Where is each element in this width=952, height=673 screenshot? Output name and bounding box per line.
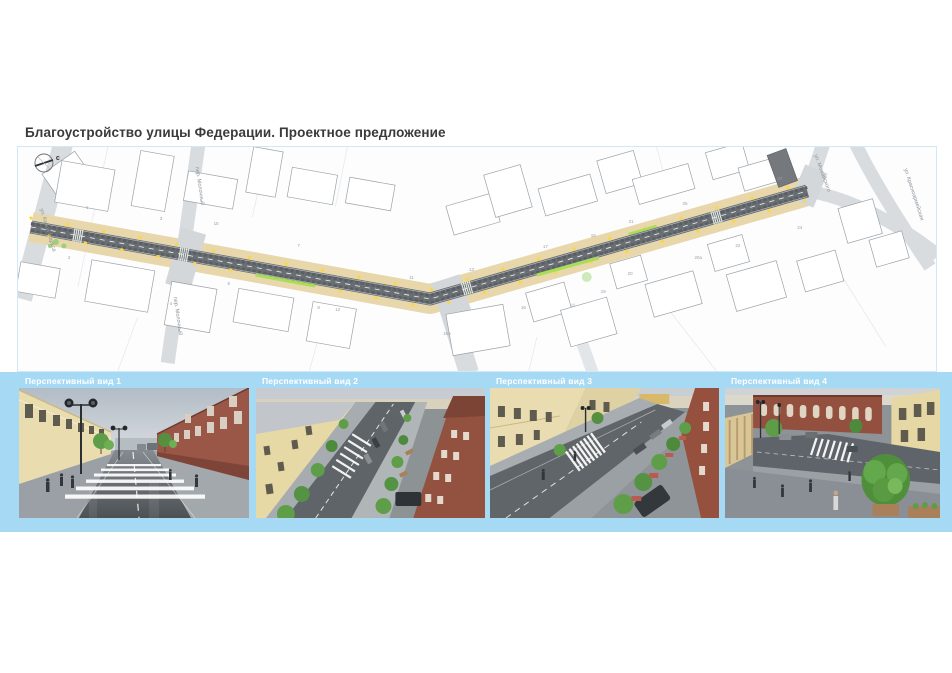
view-2-image	[256, 388, 485, 518]
view-2-scene	[256, 388, 485, 518]
svg-text:17: 17	[543, 244, 548, 249]
svg-text:12: 12	[335, 307, 340, 312]
view-1-scene	[19, 388, 249, 518]
svg-text:27: 27	[777, 176, 782, 181]
view-3-scene	[490, 388, 719, 518]
svg-text:19: 19	[601, 289, 606, 294]
page-title: Благоустройство улицы Федерации. Проектн…	[25, 125, 446, 140]
svg-text:2: 2	[68, 255, 71, 260]
svg-text:18: 18	[591, 233, 596, 238]
view-1-image	[19, 388, 249, 518]
view-3-label: Перспективный вид 3	[496, 376, 592, 386]
svg-text:20а: 20а	[695, 255, 703, 260]
svg-text:22: 22	[735, 243, 740, 248]
svg-text:3: 3	[160, 216, 163, 221]
svg-text:21: 21	[629, 219, 634, 224]
svg-text:24: 24	[797, 225, 802, 230]
street-label-krasnoarmeyskaya: ул. Красноармейская	[902, 167, 925, 221]
views-panel: Перспективный вид 1 Перспективный вид 2 …	[0, 372, 952, 532]
svg-text:10: 10	[214, 221, 219, 226]
view-3-image	[490, 388, 719, 518]
view-4-label: Перспективный вид 4	[731, 376, 827, 386]
view-4-scene	[725, 388, 940, 518]
view-1-label: Перспективный вид 1	[25, 376, 121, 386]
svg-text:13: 13	[469, 267, 474, 272]
view-2-label: Перспективный вид 2	[262, 376, 358, 386]
svg-text:6: 6	[228, 281, 231, 286]
svg-text:16А: 16А	[443, 331, 451, 336]
presentation-slide: Благоустройство улицы Федерации. Проектн…	[0, 0, 952, 673]
svg-text:16: 16	[521, 305, 526, 310]
site-plan-map: с ул. Карла Маркса пер. Молочный пер. Мо…	[17, 146, 937, 372]
svg-text:25: 25	[683, 201, 688, 206]
svg-text:7: 7	[297, 243, 300, 248]
svg-text:11: 11	[409, 275, 414, 280]
svg-text:20: 20	[628, 271, 633, 276]
view-4-image	[725, 388, 940, 518]
north-label: с	[56, 155, 60, 162]
site-plan-svg: с ул. Карла Маркса пер. Молочный пер. Мо…	[18, 147, 936, 371]
